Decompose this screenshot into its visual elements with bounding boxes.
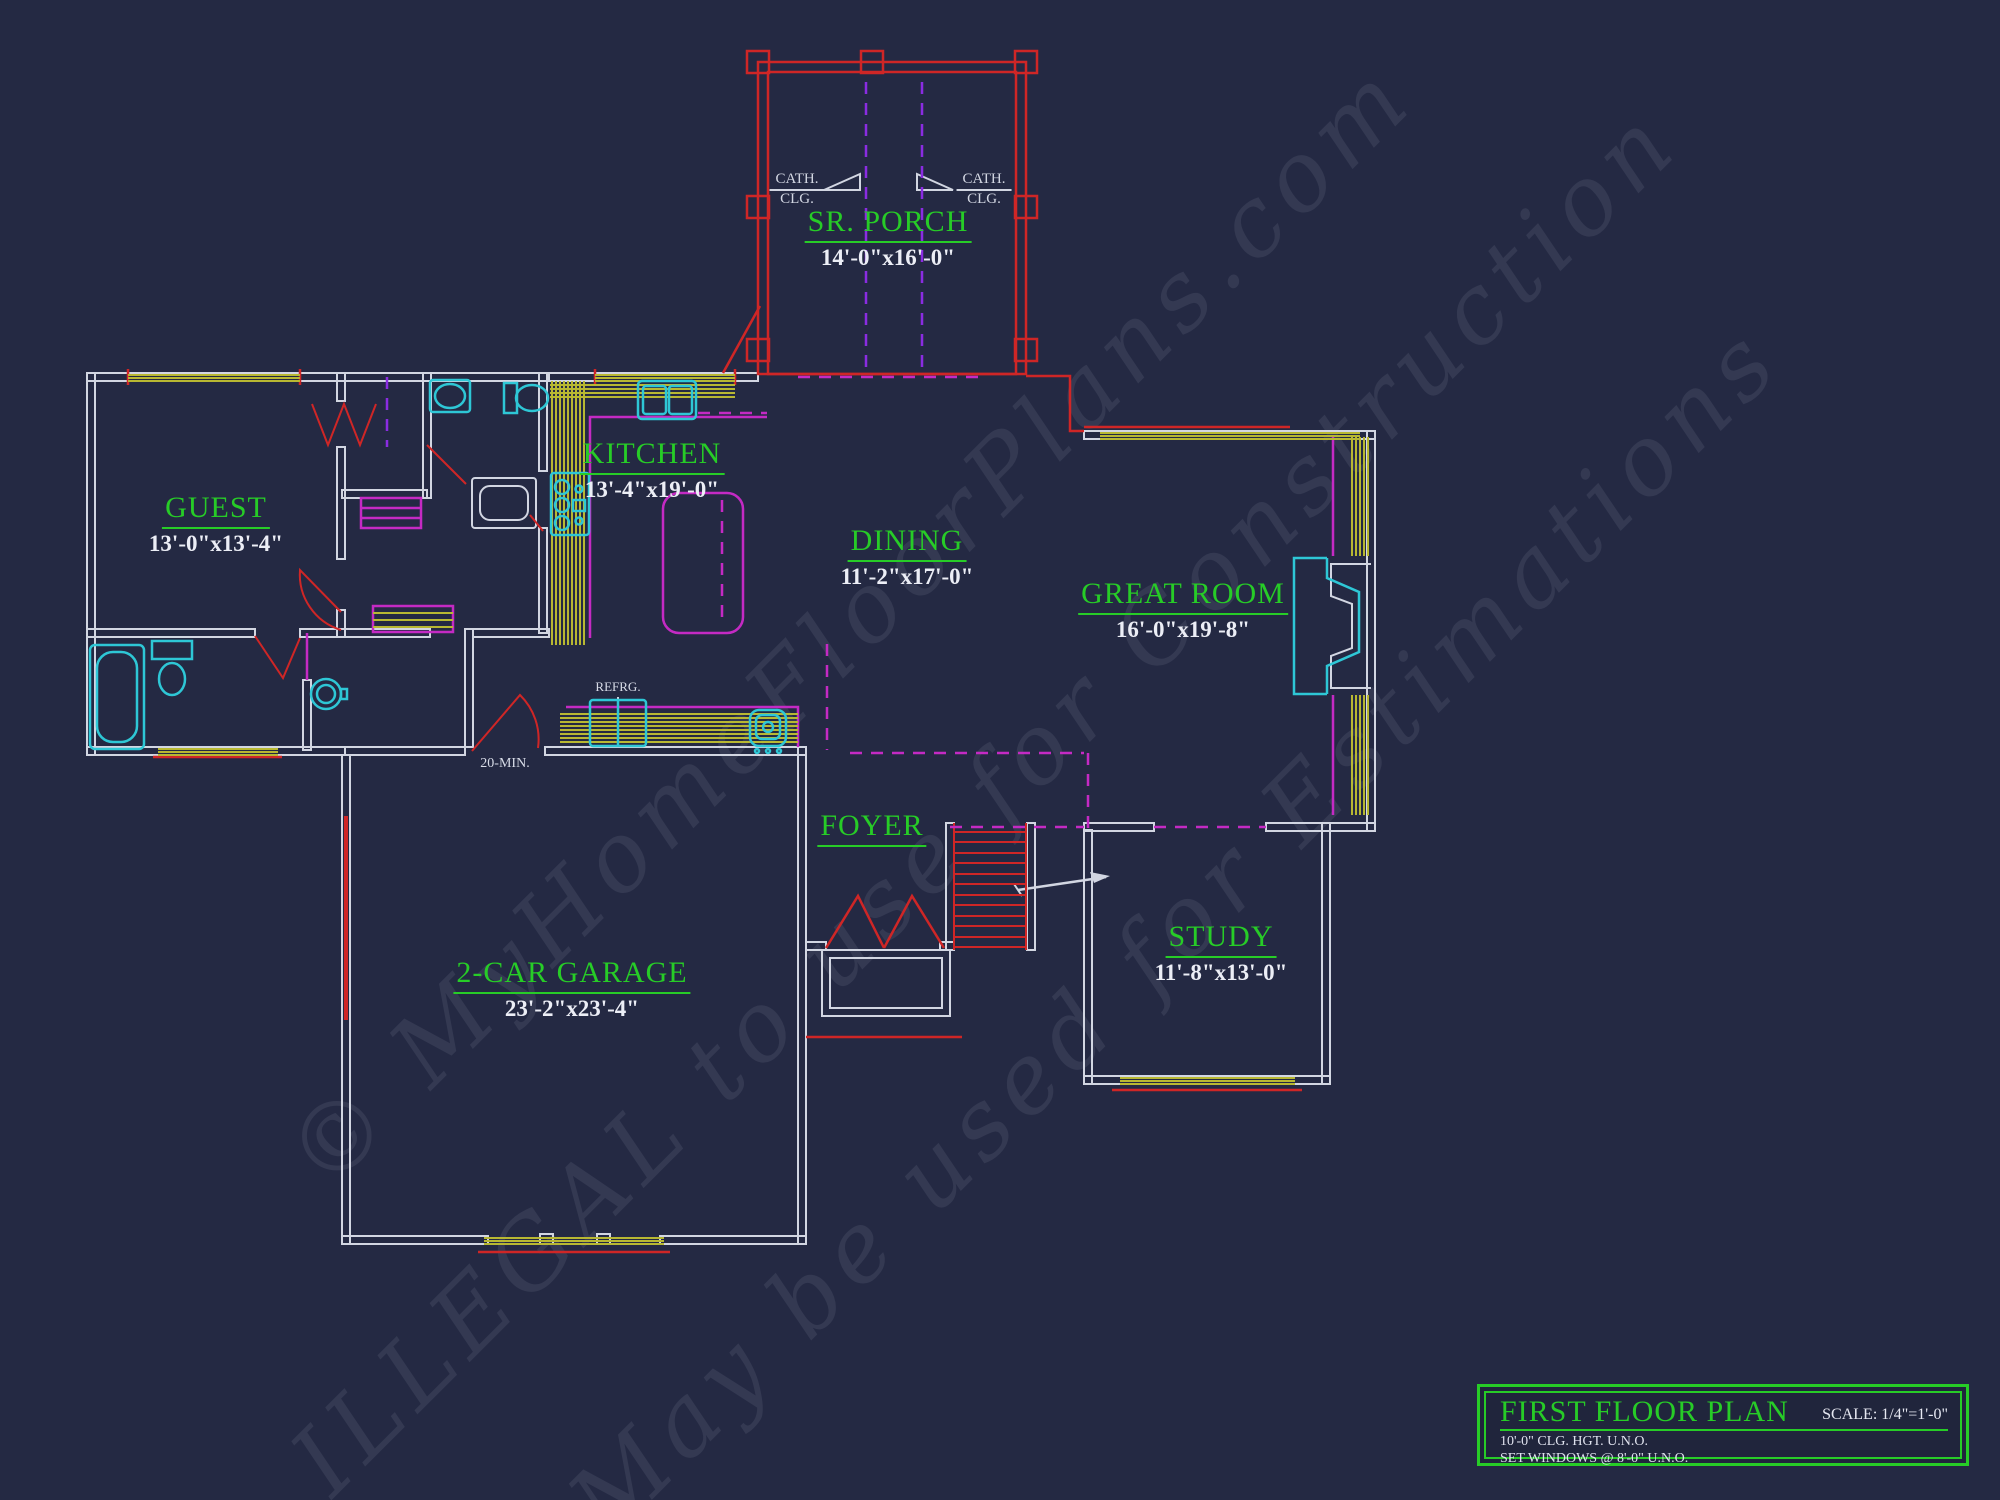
room-label-great-room: GREAT ROOM 16'-0"x19'-8" <box>1078 578 1288 642</box>
room-name: FOYER <box>817 810 926 847</box>
title-block-inner: FIRST FLOOR PLAN SCALE: 1/4"=1'-0" 10'-0… <box>1484 1391 1962 1459</box>
room-label-study: STUDY 11'-8"x13'-0" <box>1155 921 1288 985</box>
wall-oven <box>750 710 786 753</box>
window-height-note: SET WINDOWS @ 8'-0" U.N.O. <box>1500 1451 1948 1468</box>
garage-door-rating-label: 20-MIN. <box>480 756 529 772</box>
cath-text: CATH. <box>957 171 1012 191</box>
refrigerator-label: REFRG. <box>595 679 640 695</box>
room-label-dining: DINING 11'-2"x17'-0" <box>841 525 974 589</box>
room-label-sr-porch: SR. PORCH 14'-0"x16'-0" <box>805 206 972 270</box>
room-dims: 13'-4"x19'-0" <box>580 478 725 502</box>
title-divider <box>1500 1429 1948 1431</box>
cath-clg-note-right: CATH. CLG. <box>957 171 1012 209</box>
powder-sink <box>430 380 470 412</box>
room-label-guest: GUEST 13'-0"x13'-4" <box>149 492 283 556</box>
room-dims: 13'-0"x13'-4" <box>149 532 283 556</box>
room-name: GREAT ROOM <box>1078 578 1288 615</box>
mud-sink <box>311 679 347 709</box>
sheet-scale: SCALE: 1/4"=1'-0" <box>1822 1406 1948 1427</box>
room-label-kitchen: KITCHEN 13'-4"x19'-0" <box>580 438 725 502</box>
title-block: FIRST FLOOR PLAN SCALE: 1/4"=1'-0" 10'-0… <box>1477 1384 1969 1466</box>
ceiling-slope-icon <box>824 174 860 190</box>
bath-tub <box>90 645 144 749</box>
room-name: GUEST <box>162 492 270 529</box>
bath-toilet <box>159 663 185 695</box>
room-dims: 11'-2"x17'-0" <box>841 565 974 589</box>
pantry-shelves <box>361 498 421 528</box>
front-door-swing <box>826 896 884 948</box>
room-dims: 16'-0"x19'-8" <box>1078 618 1288 642</box>
powder-toilet <box>504 383 548 413</box>
front-door-swing <box>884 896 944 948</box>
room-name: STUDY <box>1165 921 1276 958</box>
floor-plan-canvas: © MyHomeFloorPlans.com ILLEGAL to use fo… <box>0 0 2000 1500</box>
room-dims: 11'-8"x13'-0" <box>1155 961 1288 985</box>
clg-text: CLG. <box>957 191 1012 208</box>
sheet-title: FIRST FLOOR PLAN <box>1500 1397 1789 1427</box>
kitchen-island <box>663 493 743 633</box>
cath-clg-note-left: CATH. CLG. <box>770 171 825 209</box>
room-dims: 23'-2"x23'-4" <box>453 997 690 1021</box>
ceiling-height-note: 10'-0" CLG. HGT. U.N.O. <box>1500 1434 1948 1451</box>
room-name: DINING <box>848 525 967 562</box>
door-swings <box>255 404 543 751</box>
room-label-garage: 2-CAR GARAGE 23'-2"x23'-4" <box>453 957 690 1021</box>
windows-and-hatch <box>128 375 1368 1244</box>
clg-text: CLG. <box>770 191 825 208</box>
cath-text: CATH. <box>770 171 825 191</box>
room-name: KITCHEN <box>580 438 725 475</box>
room-dims: 14'-0"x16'-0" <box>805 246 972 270</box>
room-name: SR. PORCH <box>805 206 972 243</box>
red-linework <box>128 51 1302 1252</box>
floor-plan-drawing <box>0 0 2000 1500</box>
room-name: 2-CAR GARAGE <box>453 957 690 994</box>
fireplace <box>1294 558 1359 694</box>
kitchen-sink <box>638 381 696 419</box>
bath-vanity <box>152 641 192 659</box>
room-label-foyer: FOYER <box>817 810 926 847</box>
